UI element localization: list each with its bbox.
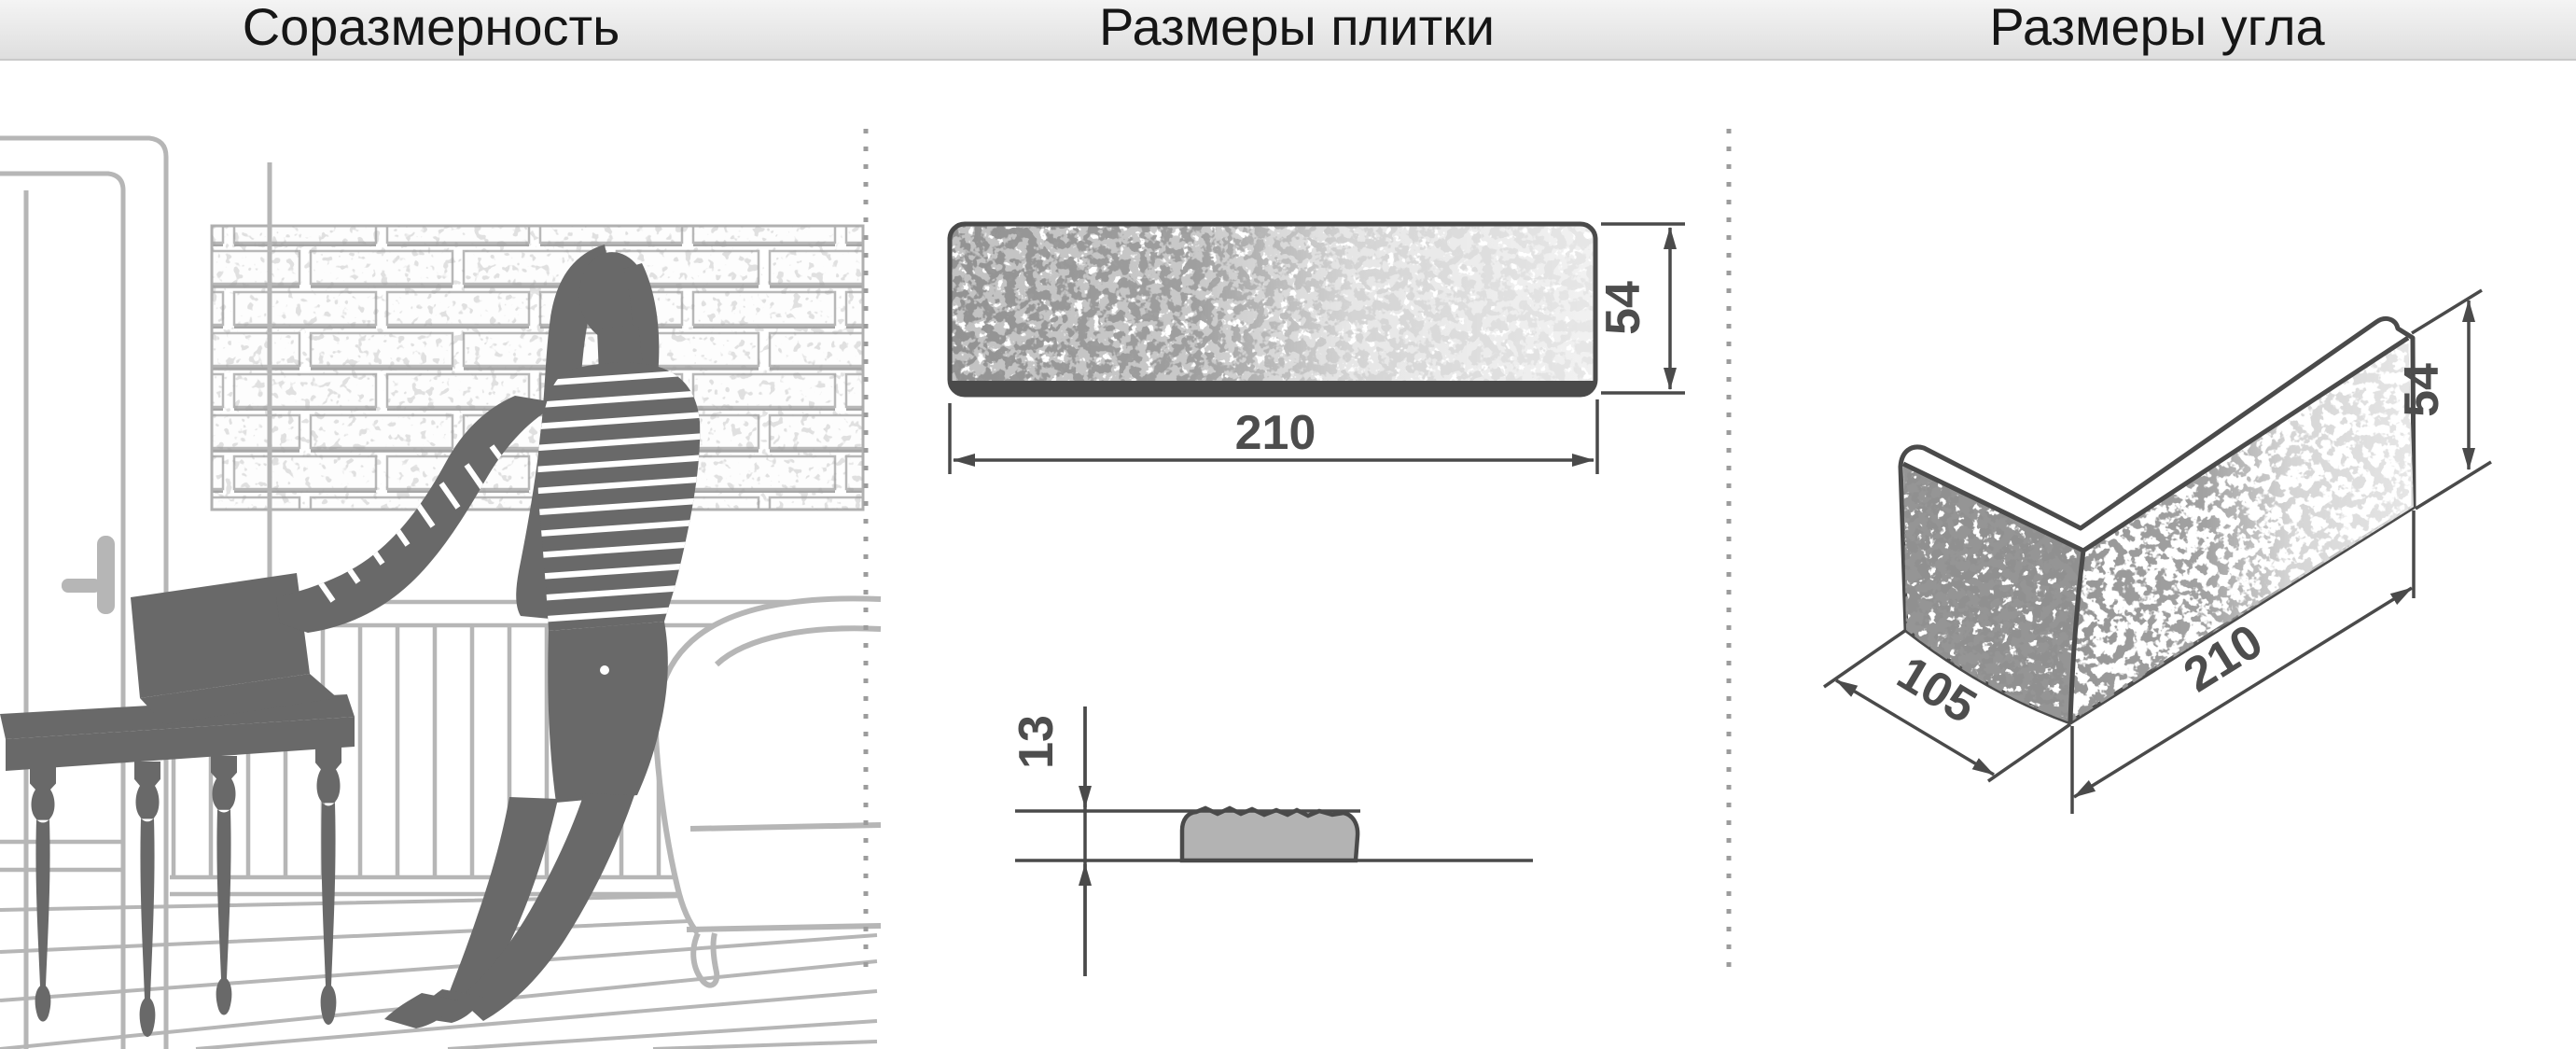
- section-title-corner-dimensions: Размеры угла: [1989, 0, 2325, 56]
- tile-face: [950, 224, 1595, 395]
- tile-height-dimension: 54: [1596, 224, 1685, 393]
- tile-thickness-label: 13: [1010, 715, 1064, 769]
- corner-tile: [1894, 318, 2425, 737]
- jeans-button: [600, 665, 609, 675]
- hips: [548, 622, 668, 803]
- header-band: Соразмерность Размеры плитки Размеры угл…: [0, 0, 2576, 60]
- door-handle: [62, 536, 115, 614]
- tile-width-label: 210: [1235, 406, 1316, 460]
- corner-height-label: 54: [2395, 363, 2449, 417]
- tile-profile-drawing: 13: [1010, 706, 1533, 976]
- table: [0, 573, 355, 1037]
- sofa: [654, 596, 881, 985]
- tile-profile: [1182, 808, 1358, 860]
- section-title-proportionality: Соразмерность: [243, 0, 620, 56]
- corner-dimensions-drawing: 105 210 54: [1729, 129, 2491, 976]
- tile-height-label: 54: [1596, 281, 1650, 335]
- tile-width-dimension: 210: [950, 399, 1597, 474]
- door: [0, 138, 166, 1049]
- proportionality-scene: [0, 129, 881, 1049]
- product-dimensions-infographic: 210 54 13: [0, 0, 2576, 1049]
- section-title-tile-dimensions: Размеры плитки: [1099, 0, 1495, 56]
- tile-dimensions-drawing: 210 54 13: [950, 224, 1685, 976]
- shoe-2: [384, 993, 459, 1028]
